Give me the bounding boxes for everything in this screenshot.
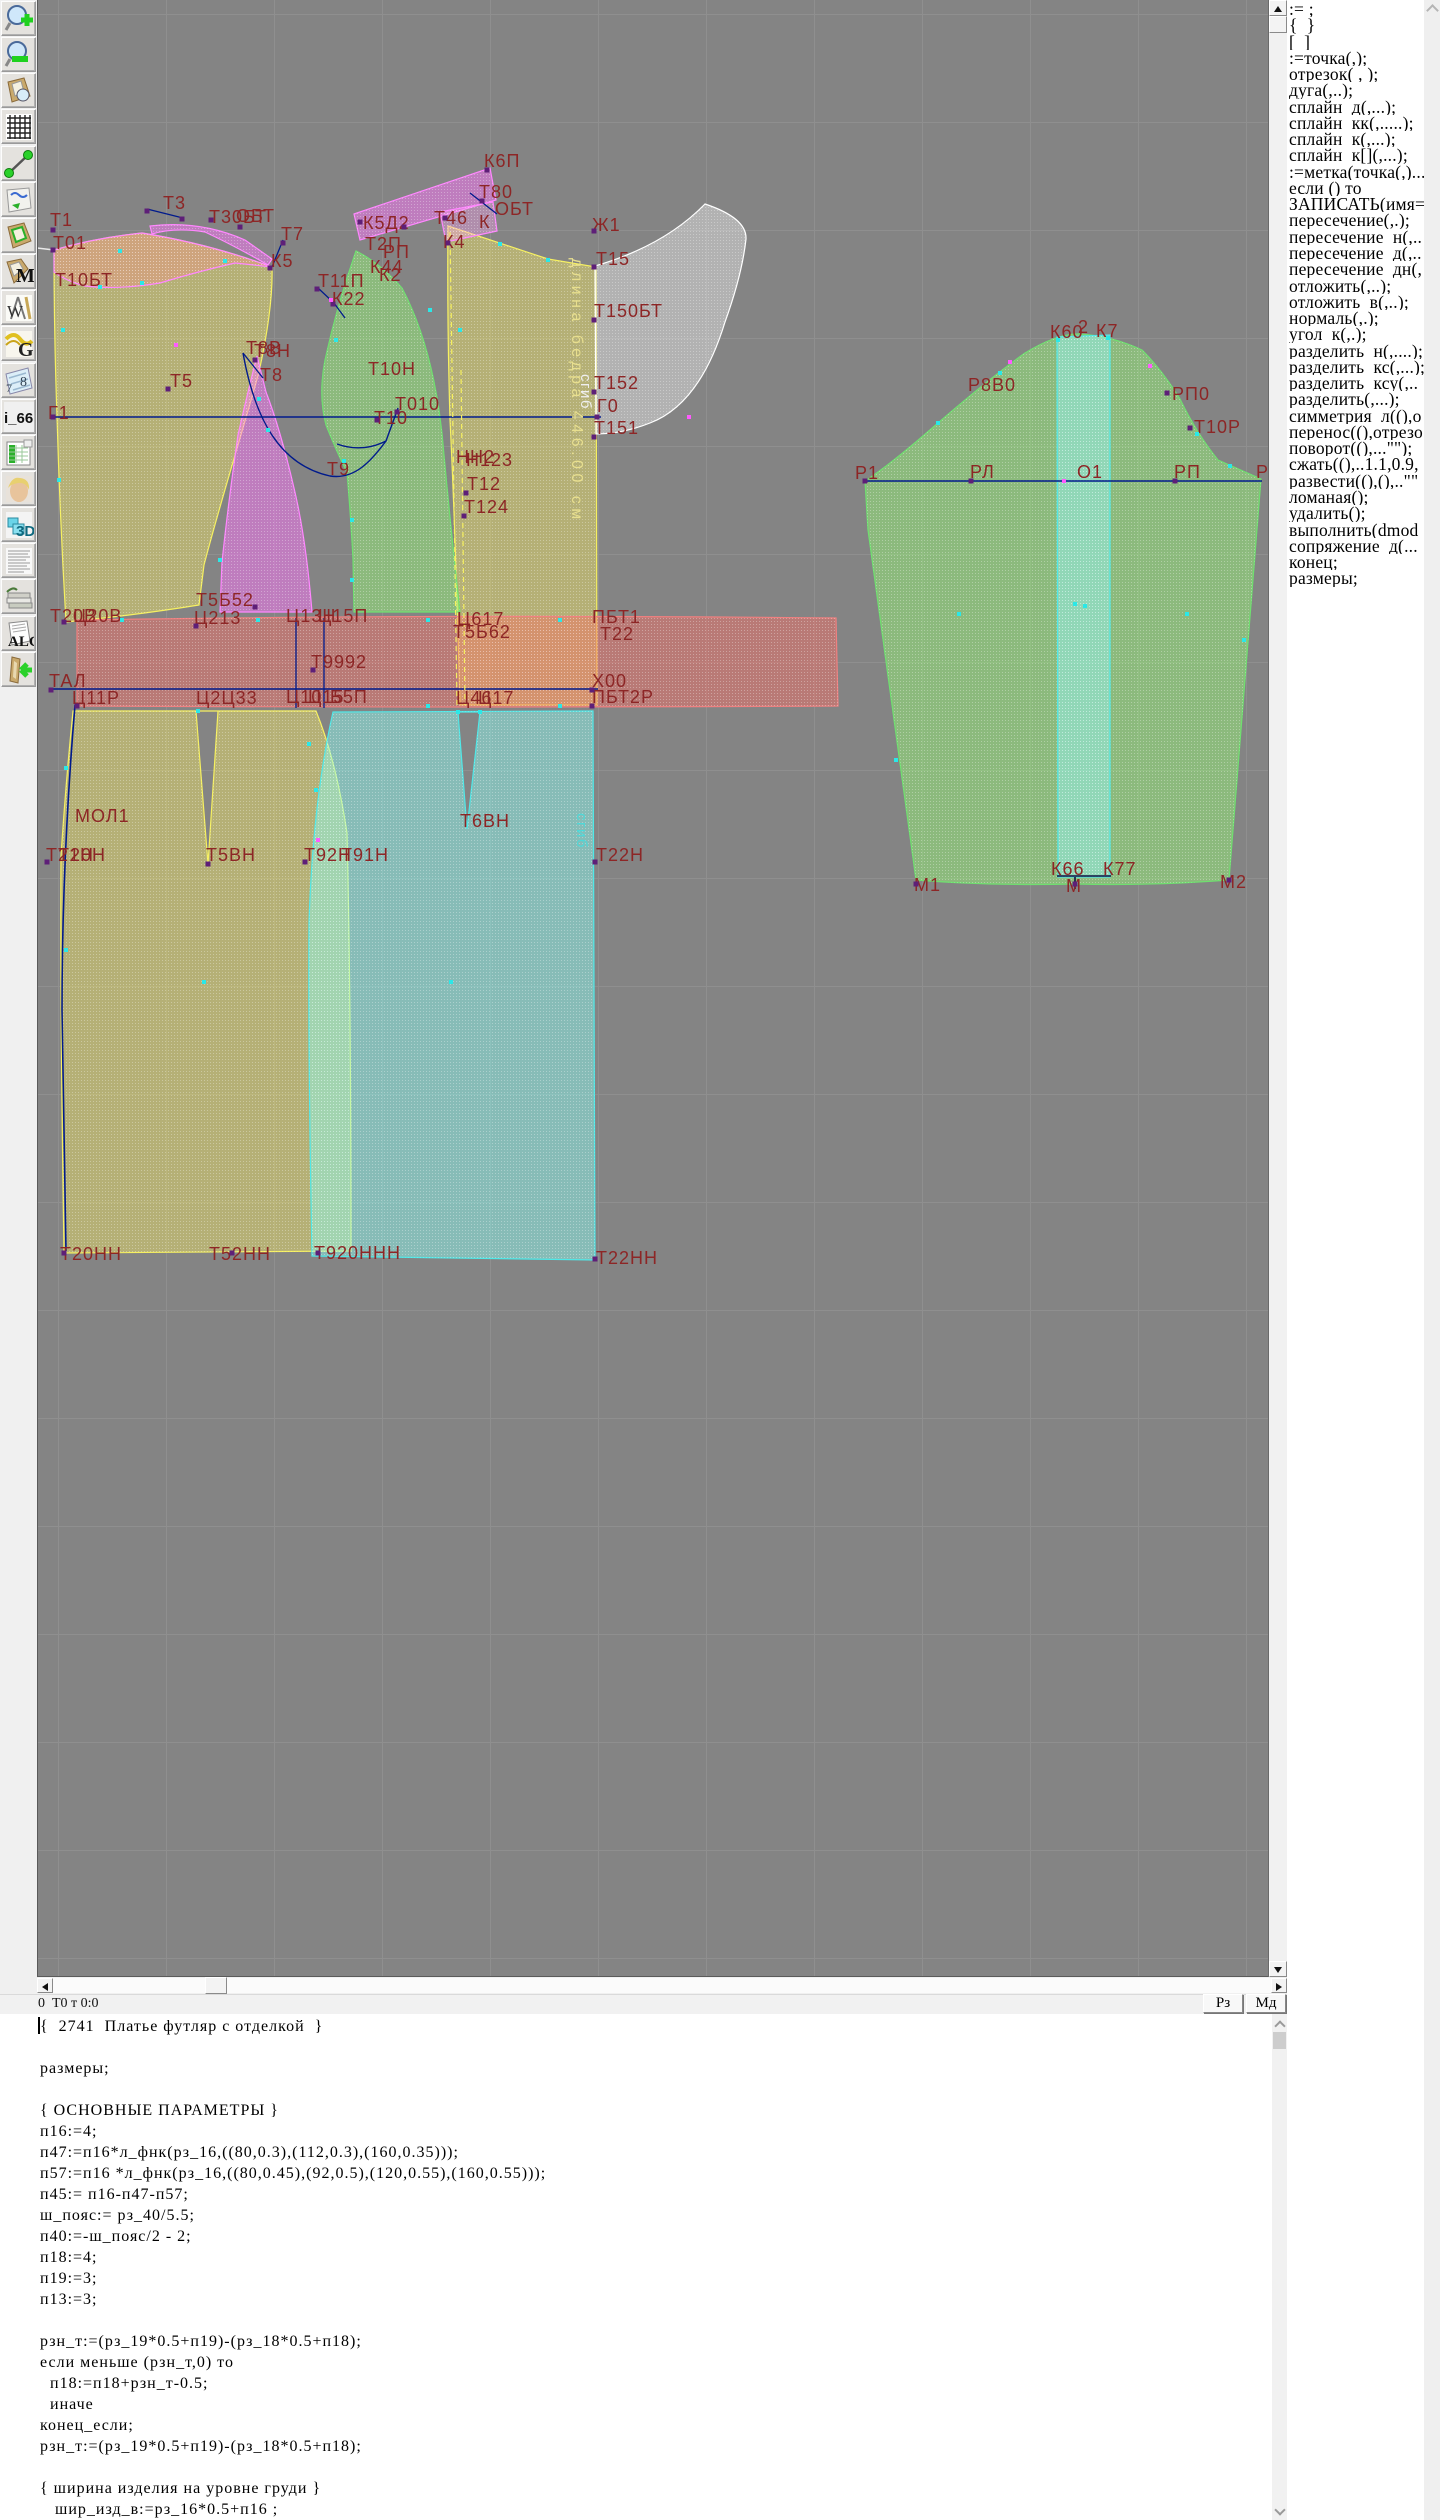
svg-text:7: 7 [6, 381, 12, 395]
svg-text:М2: М2 [1220, 872, 1247, 892]
svg-text:Т124: Т124 [464, 497, 509, 517]
svg-text:МОЛ1: МОЛ1 [75, 806, 130, 826]
svg-text:ОБТ: ОБТ [495, 199, 534, 219]
svg-text:Т12: Т12 [467, 474, 501, 494]
svg-text:Р8В0: Р8В0 [968, 375, 1016, 395]
svg-text:сгиб: сгиб [577, 374, 594, 410]
svg-text:Т52НН: Т52НН [209, 1244, 271, 1264]
svg-text:Т5Б62: Т5Б62 [453, 622, 511, 642]
svg-text:ALG: ALG [8, 634, 34, 649]
svg-text:Т10БТ: Т10БТ [55, 270, 113, 290]
svg-text:РП: РП [1174, 462, 1201, 482]
svg-text:Н123: Н123 [466, 450, 513, 470]
svg-text:Т22НН: Т22НН [596, 1248, 658, 1268]
svg-text:Ц15П: Ц15П [318, 606, 368, 626]
svg-text:РЛ: РЛ [970, 462, 995, 482]
svg-text:Т3: Т3 [163, 193, 186, 213]
svg-text:Т15: Т15 [596, 249, 630, 269]
svg-text:Т9: Т9 [327, 459, 350, 479]
svg-text:РП0: РП0 [1172, 384, 1210, 404]
svg-text:M: M [16, 265, 34, 287]
svg-text:К22: К22 [332, 289, 366, 309]
svg-text:ПБТ2Р: ПБТ2Р [592, 687, 654, 707]
svg-text:Т22: Т22 [600, 624, 634, 644]
svg-text:сгиб: сгиб [573, 813, 590, 849]
svg-text:Т22Н: Т22Н [596, 845, 644, 865]
svg-text:К77: К77 [1103, 859, 1137, 879]
svg-text:Ц2Ц33: Ц2Ц33 [196, 688, 258, 708]
svg-text:Т91Н: Т91Н [341, 845, 389, 865]
svg-text:Т151: Т151 [594, 418, 639, 438]
svg-text:Т10Р: Т10Р [1194, 417, 1241, 437]
svg-text:Т5: Т5 [170, 371, 193, 391]
svg-text:Т20Н: Т20Н [58, 845, 106, 865]
svg-text:Б5П: Б5П [330, 687, 368, 707]
svg-text:Т9992: Т9992 [311, 652, 367, 672]
svg-text:Т6ВН: Т6ВН [460, 811, 510, 831]
svg-text:8: 8 [20, 375, 27, 390]
svg-text:Ц20В: Ц20В [73, 606, 122, 626]
svg-text:Т150БТ: Т150БТ [594, 301, 663, 321]
svg-text:3D: 3D [16, 523, 34, 540]
svg-text:Ц17: Ц17 [478, 688, 514, 708]
svg-text:Т1: Т1 [50, 210, 73, 230]
svg-text:Т152: Т152 [594, 373, 639, 393]
svg-text:К: К [479, 212, 491, 232]
svg-text:О1: О1 [1077, 462, 1103, 482]
svg-text:2: 2 [1078, 317, 1089, 337]
svg-text:i_66.: i_66. [4, 410, 34, 427]
svg-text:Т920ННН: Т920ННН [314, 1243, 401, 1263]
svg-text:К5Д2: К5Д2 [363, 213, 410, 233]
svg-text:К5: К5 [271, 251, 294, 271]
svg-text:Т5Б52: Т5Б52 [196, 590, 254, 610]
svg-text:ОБТ: ОБТ [236, 206, 275, 226]
svg-text:Т5ВН: Т5ВН [206, 845, 256, 865]
svg-text:G: G [18, 339, 34, 359]
svg-text:Т8В: Т8В [246, 338, 282, 358]
svg-text:Ц213: Ц213 [194, 608, 241, 628]
svg-text:Г0: Г0 [597, 396, 619, 416]
svg-text:Т8: Т8 [260, 365, 283, 385]
svg-text:Т46: Т46 [434, 208, 468, 228]
svg-text:W: W [7, 302, 24, 321]
svg-text:К2: К2 [379, 265, 402, 285]
svg-text:Р: Р [1256, 462, 1268, 482]
svg-text:Т10Н: Т10Н [368, 359, 416, 379]
svg-text:Т01: Т01 [53, 233, 87, 253]
svg-text:Т11П: Т11П [318, 271, 365, 291]
svg-text:Т20НН: Т20НН [60, 1244, 122, 1264]
svg-text:Г1: Г1 [48, 403, 70, 423]
